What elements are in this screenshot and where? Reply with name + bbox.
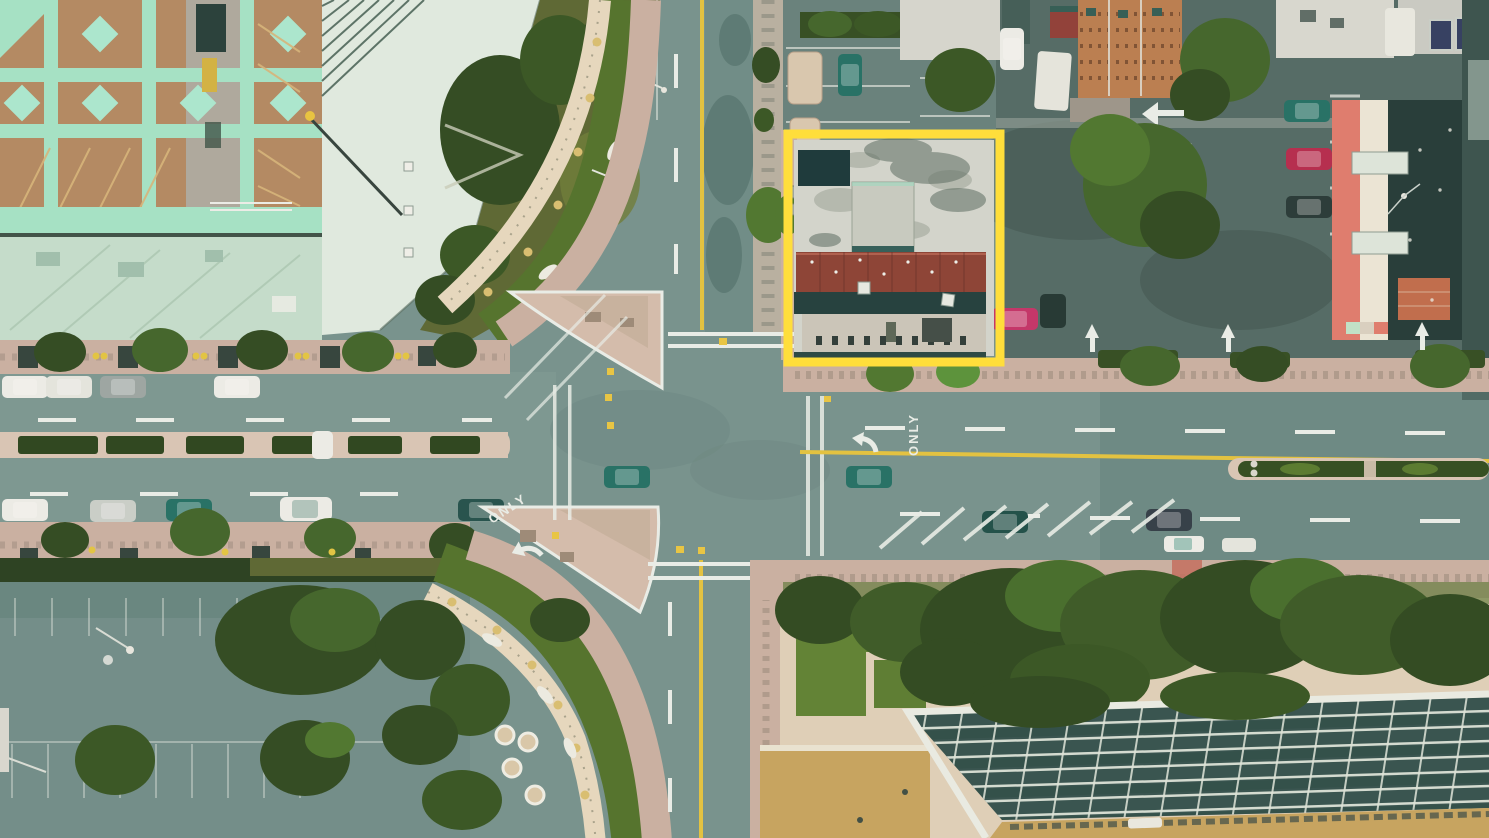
- highlighted-building: [794, 138, 994, 360]
- red-row-roof: [796, 252, 986, 292]
- rooftop-unit-dark: [798, 150, 850, 186]
- film-tint: [0, 0, 1489, 838]
- aerial-photo: ONLY: [0, 0, 1489, 838]
